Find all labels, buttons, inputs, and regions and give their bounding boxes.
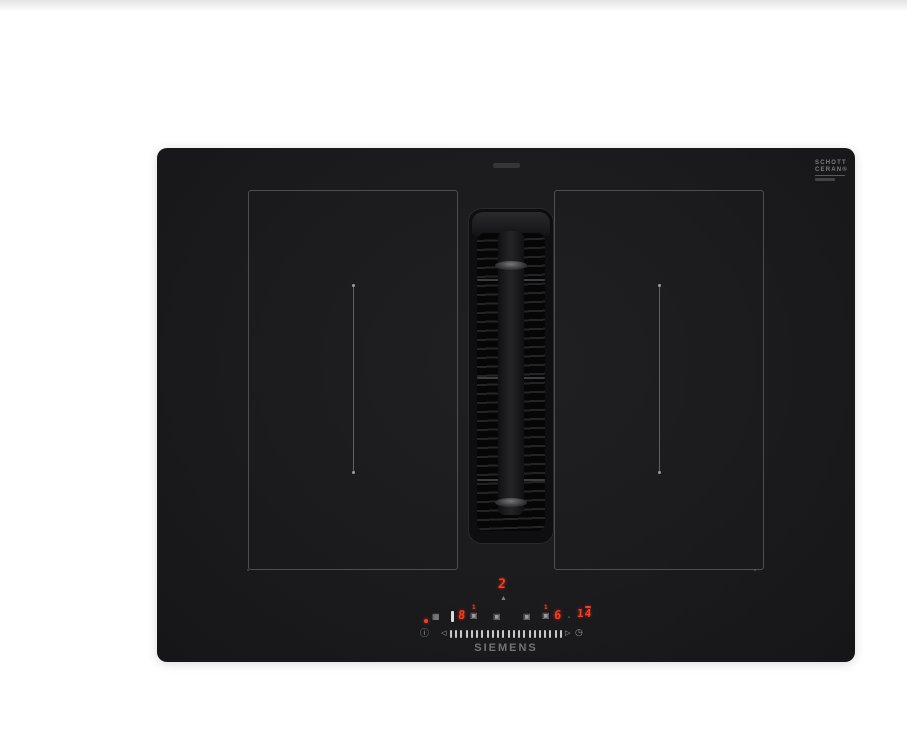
glass-print-illegible <box>493 163 520 168</box>
slider-tick[interactable] <box>549 630 551 638</box>
slider-right-arrow-icon[interactable]: ▷ <box>565 630 570 638</box>
slider-tick[interactable] <box>502 630 504 638</box>
fan-level-display: 2 <box>498 578 507 591</box>
slider-tick[interactable] <box>508 630 510 638</box>
slider-tick[interactable] <box>481 630 483 638</box>
schott-subprint <box>815 178 835 181</box>
slider-tick[interactable] <box>492 630 494 638</box>
pan-size-marker-left: ▫ <box>247 568 249 574</box>
right-zone-icon: ▣ <box>542 612 550 620</box>
fan-icon[interactable]: ▲ <box>500 595 507 603</box>
right-zone-select[interactable]: 1 ▣ <box>542 605 550 620</box>
slider-tick[interactable] <box>450 630 452 638</box>
zone-select-icon-a[interactable]: ▣ <box>493 612 501 621</box>
induction-cooktop: SCHOTT CERAN® ▫ ▫ 2 ▲ ▦ 8 1 ▣ ▣ ▣ <box>157 148 855 662</box>
left-zone-icon: ▣ <box>470 612 478 620</box>
slider-tick[interactable] <box>497 630 499 638</box>
left-zone-power-display: 8 <box>458 609 466 621</box>
slider-left-arrow-icon[interactable]: ◁ <box>441 630 446 638</box>
slider-tick[interactable] <box>460 630 462 638</box>
zone-select-icon-c[interactable]: ▫ <box>568 614 570 623</box>
touch-control-panel: 2 ▲ ▦ 8 1 ▣ ▣ ▣ 1 ▣ 6 ▫ 14 ⓘ ◁ ▷ ◷ <box>397 578 617 642</box>
vent-handle-knob-bottom <box>495 498 527 507</box>
timer-display: 14 <box>577 606 592 619</box>
product-photo-page: { "cooktop": { "brand": "SIEMENS", "body… <box>0 0 907 756</box>
vent-center-handle[interactable] <box>498 231 524 515</box>
schott-line1: SCHOTT <box>815 160 848 167</box>
timer-clock-icon[interactable]: ◷ <box>575 628 583 637</box>
cooking-zone-right <box>554 190 764 570</box>
slider-tick[interactable] <box>471 630 473 638</box>
flexzone-divider-line <box>353 287 354 471</box>
schott-rule <box>815 175 845 176</box>
power-on-bar-icon[interactable] <box>451 611 454 622</box>
slider-tick[interactable] <box>523 630 525 638</box>
vent-handle-knob-top <box>495 261 527 270</box>
slider-tick[interactable] <box>476 630 478 638</box>
slider-tick[interactable] <box>555 630 557 638</box>
siemens-logo: SIEMENS <box>157 642 855 654</box>
schott-line2: CERAN® <box>815 167 848 174</box>
left-zone-select[interactable]: 1 ▣ <box>470 605 478 620</box>
power-slider[interactable] <box>450 630 562 638</box>
slider-tick[interactable] <box>544 630 546 638</box>
slider-tick[interactable] <box>529 630 531 638</box>
schott-ceran-logo: SCHOTT CERAN® <box>815 160 848 181</box>
pan-size-marker-right: ▫ <box>754 568 756 574</box>
background-haze <box>0 0 907 12</box>
flexzone-divider-line <box>659 287 660 471</box>
slider-tick[interactable] <box>539 630 541 638</box>
zone-select-icon-b[interactable]: ▣ <box>523 612 531 621</box>
cooking-zone-left <box>248 190 458 570</box>
info-icon[interactable]: ⓘ <box>420 629 429 638</box>
wipe-protection-icon[interactable]: ▦ <box>432 612 440 621</box>
right-zone-power-display: 6 <box>554 609 562 621</box>
vent-module <box>468 208 554 544</box>
power-indicator-dot <box>424 619 428 623</box>
slider-tick[interactable] <box>487 630 489 638</box>
slider-tick[interactable] <box>455 630 457 638</box>
slider-tick[interactable] <box>518 630 520 638</box>
timer-value: 14 <box>577 608 593 619</box>
slider-tick[interactable] <box>534 630 536 638</box>
slider-tick[interactable] <box>560 630 562 638</box>
slider-tick[interactable] <box>513 630 515 638</box>
slider-tick[interactable] <box>466 630 468 638</box>
